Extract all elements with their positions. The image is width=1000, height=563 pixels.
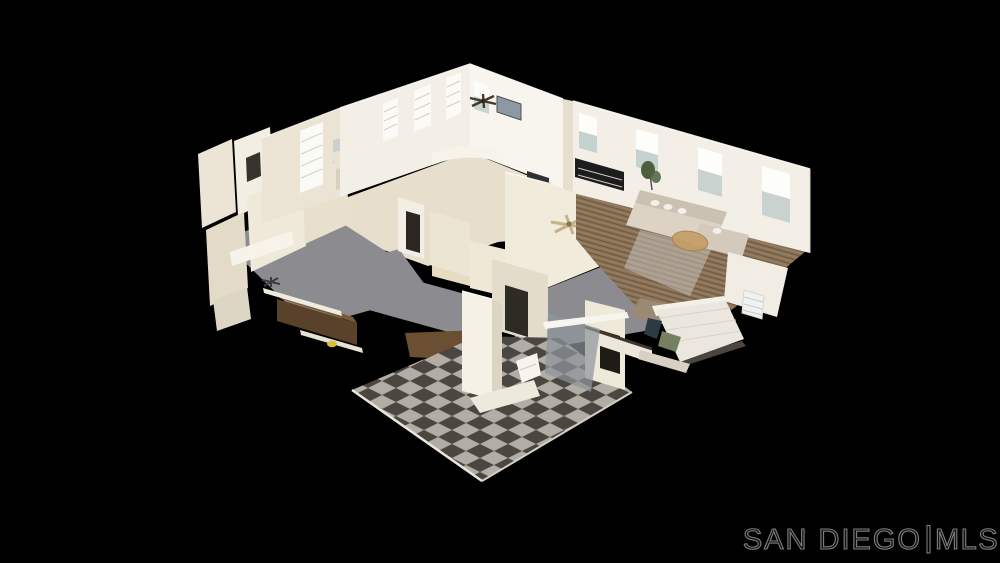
wall-fragment [198, 139, 236, 228]
listing-photo: SAN DIEGO MLS [0, 0, 1000, 563]
potted-plant [651, 171, 661, 183]
watermark: SAN DIEGO MLS [743, 524, 999, 556]
wall-sliver [563, 99, 573, 193]
throw-pillow [651, 200, 660, 206]
yellow-object [327, 341, 337, 347]
column-wall [462, 291, 492, 399]
throw-pillow [678, 208, 687, 214]
dollhouse-3d-view: SAN DIEGO MLS [0, 0, 1000, 563]
throw-pillow [713, 228, 722, 234]
bathroom-window [300, 122, 323, 193]
shuttered-window [414, 84, 431, 132]
open-door-gap [505, 285, 528, 337]
watermark-mls-text: MLS [935, 524, 999, 556]
throw-pillow [664, 204, 673, 210]
column-wall-side [492, 299, 502, 399]
watermark-brand-text: SAN DIEGO [743, 524, 922, 556]
open-door-gap [406, 211, 420, 253]
